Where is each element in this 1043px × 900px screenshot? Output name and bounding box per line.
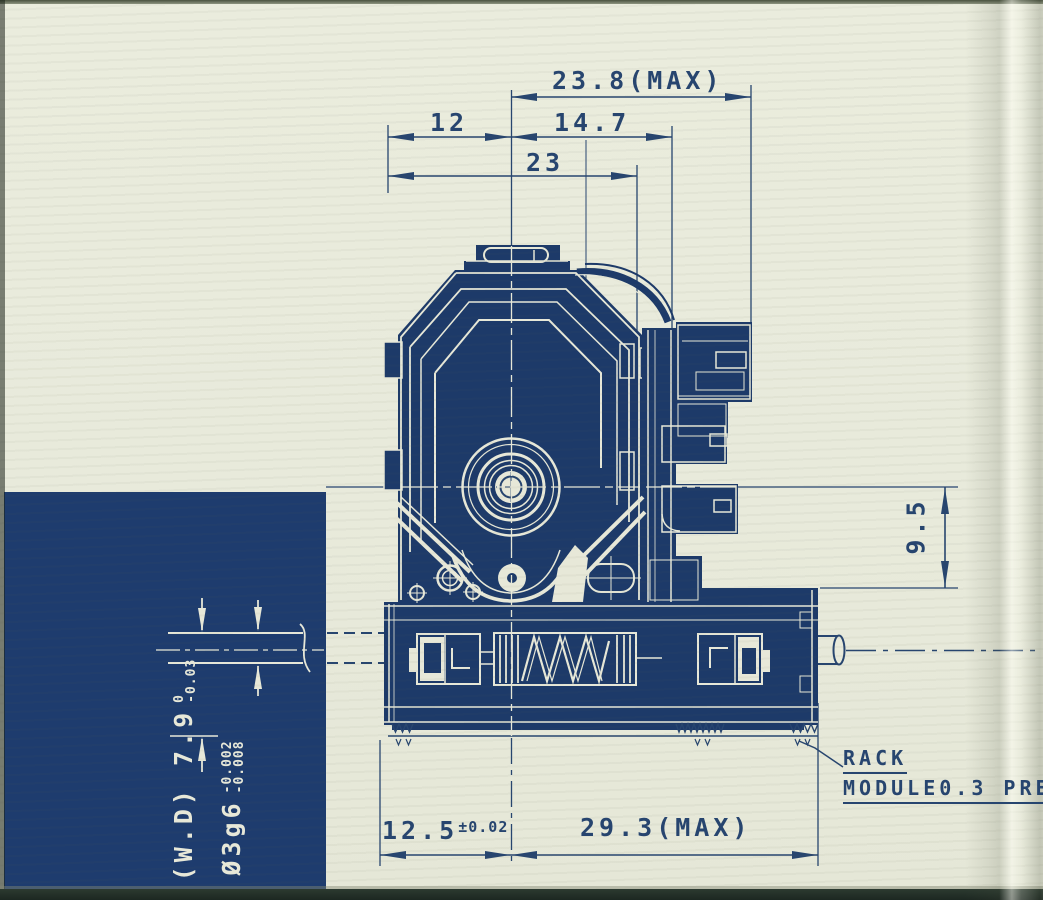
- rack-note-line1: RACK: [843, 746, 907, 774]
- dim-label-23-8-max: 23.8(MAX): [552, 66, 723, 95]
- dim-tolerance-12-5: ±0.02: [458, 818, 508, 836]
- navy-block: [4, 492, 326, 891]
- rack-band: [392, 723, 804, 730]
- box-edge-left: [0, 0, 5, 900]
- rack-note-line2: MODULE0.3 PRE: [843, 776, 1043, 804]
- shaft-stub: [818, 636, 845, 665]
- connector-mid: [660, 424, 727, 464]
- wd-prefix: (W.D): [169, 786, 198, 881]
- dim-label-9-5: 9.5: [902, 497, 931, 554]
- wd-tolerance: 0-0.03: [174, 659, 198, 703]
- dim-label-23: 23: [526, 148, 564, 177]
- dim-label-14-7: 14.7: [554, 108, 630, 137]
- shaft-value: Ø3g6: [217, 799, 246, 875]
- shaft-tolerance: -0.002-0.008: [222, 740, 246, 793]
- dim-label-shaft-diameter: Ø3g6-0.002-0.008: [217, 740, 255, 875]
- blueprint-box-photo: 23.8(MAX) 12 14.7 23 9.5 12.5±0.02 29.3(…: [0, 0, 1043, 900]
- wd-value: 7.9: [169, 709, 198, 766]
- dim-label-working-distance: (W.D)7.90-0.03: [169, 659, 207, 882]
- box-edge-bottom: [0, 889, 1043, 900]
- dim-label-12: 12: [430, 108, 468, 137]
- body-tab-left-upper: [384, 342, 402, 378]
- body-tab-left-lower: [384, 450, 402, 490]
- box-edge-top: [0, 0, 1043, 4]
- dim-label-29-3-max: 29.3(MAX): [580, 813, 751, 842]
- dim-label-12-5: 12.5±0.02: [382, 816, 508, 845]
- rack-leader-line: [799, 741, 843, 767]
